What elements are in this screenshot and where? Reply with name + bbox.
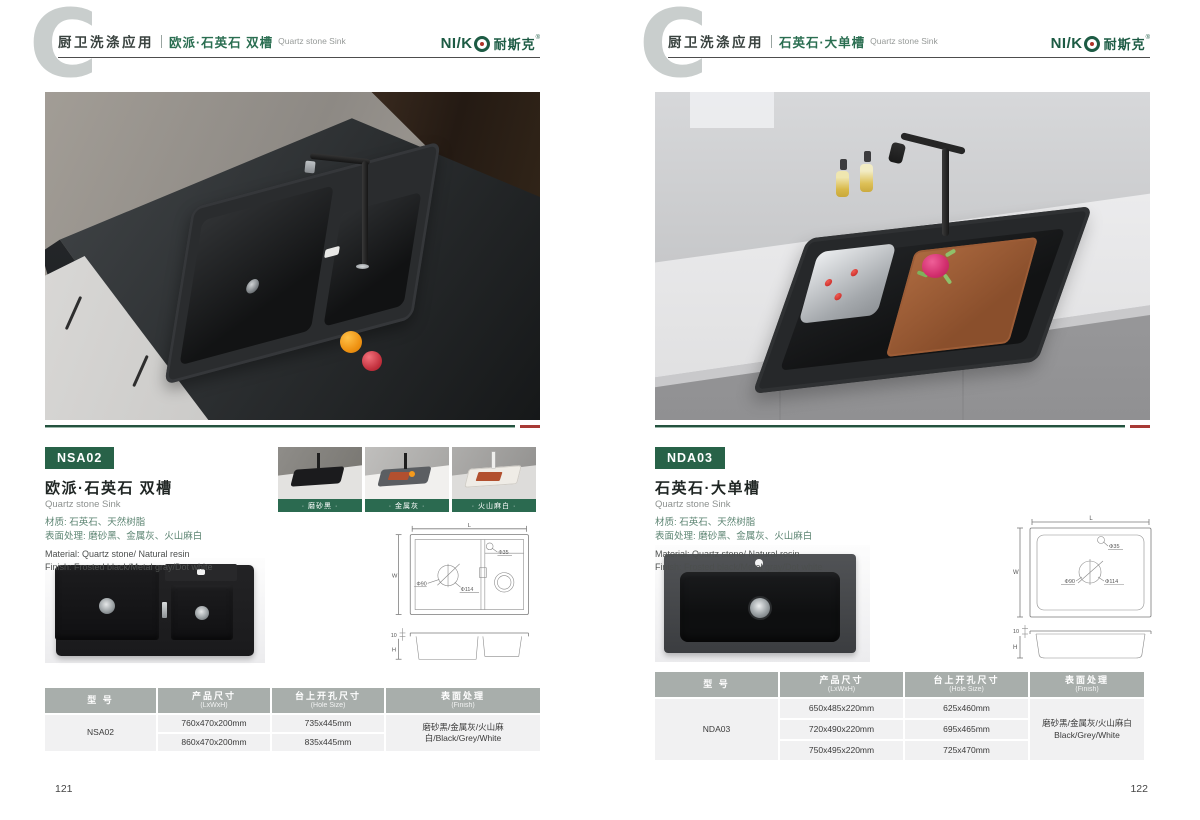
hero-photo-single-sink <box>655 92 1150 420</box>
accent-divider-red <box>1130 425 1150 428</box>
spec-table: 型 号 产品尺寸 (LxWxH) 台上开孔尺寸 (Hole Size) 表面处理… <box>655 672 1144 760</box>
cell-size: 720x490x220mm <box>780 720 903 739</box>
swatch-image-dot-white <box>452 447 536 499</box>
dim-label-d114: Φ114 <box>1105 579 1118 585</box>
dimension-drawing-svg: L Φ35 Φ90 Φ114 <box>387 522 542 668</box>
dim-label-d35: Φ35 <box>1109 544 1120 550</box>
dimension-drawing: L Φ35 Φ90 Φ114 W <box>1010 515 1160 663</box>
cell-finish: 磨砂黑/金属灰/火山麻白/Black/Grey/White <box>386 715 540 751</box>
product-name-en: Quartz stone Sink <box>45 499 277 510</box>
series-title-cn: 欧派·石英石 双槽 <box>169 32 273 51</box>
oil-bottle <box>860 164 873 192</box>
swatch-label: · 磨砂黑 · <box>278 499 362 512</box>
catalog-header: 厨卫洗涤应用 石英石·大单槽 Quartz stone Sink <box>668 31 938 51</box>
registered-mark: ® <box>536 35 540 41</box>
category-title: 厨卫洗涤应用 <box>58 31 154 51</box>
accent-divider <box>45 425 540 428</box>
cell-model: NDA03 <box>655 699 778 760</box>
cherry-tomato <box>824 279 833 287</box>
product-name-cn: 欧派·石英石 双槽 <box>45 477 277 498</box>
cell-hole: 735x445mm <box>272 715 384 732</box>
cell-finish-en: Black/Grey/White <box>1054 730 1120 741</box>
page-left: C 厨卫洗涤应用 欧派·石英石 双槽 Quartz stone Sink NI/… <box>45 0 540 820</box>
drain-small-bowl <box>195 606 209 620</box>
accent-divider-green <box>45 425 515 428</box>
swatch-metal-gray: · 金属灰 · <box>365 447 449 512</box>
dim-label-d114: Φ114 <box>461 587 474 593</box>
header-separator <box>161 35 162 48</box>
material-en: Material: Quartz stone/ Natural resin <box>45 548 277 561</box>
swatch-image-metal-gray <box>365 447 449 499</box>
cell-size: 750x495x220mm <box>780 741 903 760</box>
faucet-stem <box>362 161 368 269</box>
cell-finish-cn: 磨砂黑/金属灰/火山麻白 <box>1042 718 1132 729</box>
oil-bottle-cap <box>864 151 871 162</box>
swatch-label: · 金属灰 · <box>365 499 449 512</box>
product-info: NDA03 石英石·大单槽 Quartz stone Sink 材质: 石英石、… <box>655 447 887 574</box>
cell-model: NSA02 <box>45 715 156 751</box>
spec-table: 型 号 产品尺寸 (LxWxH) 台上开孔尺寸 (Hole Size) 表面处理… <box>45 688 540 751</box>
table-header-finish: 表面处理 (Finish) <box>1030 672 1144 697</box>
table-header-size: 产品尺寸 (LxWxH) <box>158 688 270 713</box>
cherry-tomato <box>834 293 843 301</box>
dim-label-L: L <box>468 523 472 529</box>
drain-large-bowl <box>99 598 115 614</box>
series-title-en: Quartz stone Sink <box>870 36 938 46</box>
brand-logo-latin: NI/K <box>1051 35 1083 52</box>
sink-bowl-large <box>179 185 334 366</box>
divider-chrome-strip <box>162 602 167 618</box>
dim-label-d90: Φ90 <box>1064 579 1075 585</box>
apple-fruit <box>362 351 382 371</box>
accent-divider-red <box>520 425 540 428</box>
header-separator <box>771 35 772 48</box>
surface-cn: 表面处理: 磨砂黑、金属灰、火山麻白 <box>45 530 277 544</box>
table-header-model: 型 号 <box>655 672 778 697</box>
material-cn: 材质: 石英石、天然树脂 <box>45 516 277 530</box>
table-header-finish: 表面处理 (Finish) <box>386 688 540 713</box>
brand-logo-latin: NI/K <box>441 35 473 52</box>
material-cn: 材质: 石英石、天然树脂 <box>655 516 887 530</box>
swatch-cutting-board <box>476 472 503 481</box>
swatch-image-frosted-black <box>278 447 362 499</box>
page-right: C 厨卫洗涤应用 石英石·大单槽 Quartz stone Sink NI/K … <box>655 0 1150 820</box>
product-thumbnail-top-view <box>45 558 265 663</box>
finish-en: Finish: Frosted black/Metal gray/Dot whi… <box>655 561 887 574</box>
surface-cn: 表面处理: 磨砂黑、金属灰、火山麻白 <box>655 530 887 544</box>
brand-logo: NI/K 耐斯克 ® <box>441 34 540 53</box>
brand-logo-cn: 耐斯克 <box>1104 34 1146 53</box>
dim-label-H: H <box>1013 645 1017 651</box>
dim-label-H: H <box>392 647 396 653</box>
swatch-cutting-board <box>387 472 410 480</box>
oil-bottle <box>836 171 849 197</box>
table-header-hole: 台上开孔尺寸 (Hole Size) <box>905 672 1028 697</box>
cell-size: 650x485x220mm <box>780 699 903 718</box>
catalog-header: 厨卫洗涤应用 欧派·石英石 双槽 Quartz stone Sink <box>58 31 346 51</box>
swatch-label: · 火山麻白 · <box>452 499 536 512</box>
page-number: 121 <box>55 783 73 795</box>
hero-photo-double-sink <box>45 92 540 420</box>
swatch-faucet <box>404 453 407 469</box>
accent-divider-green <box>655 425 1125 428</box>
category-title: 厨卫洗涤应用 <box>668 31 764 51</box>
dimension-drawing-svg: L Φ35 Φ90 Φ114 W <box>1010 515 1160 663</box>
dim-label-d90: Φ90 <box>417 581 427 587</box>
series-title-cn: 石英石·大单槽 <box>779 32 865 51</box>
swatch-faucet <box>492 452 495 468</box>
product-name-cn: 石英石·大单槽 <box>655 477 887 498</box>
finish-swatches: · 磨砂黑 · · 金属灰 · <box>278 447 536 512</box>
dim-label-d35: Φ35 <box>498 550 508 556</box>
model-badge: NSA02 <box>45 447 114 469</box>
dim-label-rim: 10 <box>391 633 397 639</box>
dim-label-W: W <box>392 573 398 579</box>
faucet-stem <box>942 148 949 237</box>
dimension-drawing: L Φ35 Φ90 Φ114 <box>387 522 542 668</box>
dim-label-rim: 10 <box>1013 629 1019 635</box>
oil-bottle-cap <box>840 159 847 170</box>
dim-label-L: L <box>1089 516 1093 522</box>
cell-finish: 磨砂黑/金属灰/火山麻白 Black/Grey/White <box>1030 699 1144 760</box>
faucet-spout <box>304 160 315 173</box>
cell-hole: 625x460mm <box>905 699 1028 718</box>
orange-fruit <box>340 331 362 353</box>
finish-en: Finish: Frosted black/Metal gray/Dot whi… <box>45 561 277 574</box>
cell-size: 860x470x200mm <box>158 734 270 751</box>
page-number: 122 <box>1130 783 1148 795</box>
cell-size: 760x470x200mm <box>158 715 270 732</box>
model-badge: NDA03 <box>655 447 725 469</box>
table-header-model: 型 号 <box>45 688 156 713</box>
cell-hole: 835x445mm <box>272 734 384 751</box>
sink-bowl-small <box>323 192 421 327</box>
catalog-spread: C 厨卫洗涤应用 欧派·石英石 双槽 Quartz stone Sink NI/… <box>0 0 1200 820</box>
window-reflection <box>690 92 774 128</box>
registered-mark: ® <box>1146 35 1150 41</box>
material-en: Material: Quartz stone/ Natural resin <box>655 548 887 561</box>
swatch-frosted-black: · 磨砂黑 · <box>278 447 362 512</box>
dim-label-W: W <box>1013 570 1019 576</box>
cherry-tomato <box>850 269 859 277</box>
accent-divider <box>655 425 1150 428</box>
sink-drain <box>750 598 770 618</box>
header-rule <box>58 57 540 58</box>
brand-logo-o-mark <box>474 36 490 52</box>
brand-logo: NI/K 耐斯克 ® <box>1051 34 1150 53</box>
series-title-en: Quartz stone Sink <box>278 36 346 46</box>
cell-hole: 725x470mm <box>905 741 1028 760</box>
product-info: NSA02 欧派·石英石 双槽 Quartz stone Sink 材质: 石英… <box>45 447 277 574</box>
cell-hole: 695x465mm <box>905 720 1028 739</box>
table-header-size: 产品尺寸 (LxWxH) <box>780 672 903 697</box>
brand-logo-o-mark <box>1084 36 1100 52</box>
swatch-dot-white: · 火山麻白 · <box>452 447 536 512</box>
product-name-en: Quartz stone Sink <box>655 499 887 510</box>
header-rule <box>668 57 1150 58</box>
swatch-faucet <box>317 453 320 469</box>
brand-logo-cn: 耐斯克 <box>494 34 536 53</box>
table-header-hole: 台上开孔尺寸 (Hole Size) <box>272 688 384 713</box>
